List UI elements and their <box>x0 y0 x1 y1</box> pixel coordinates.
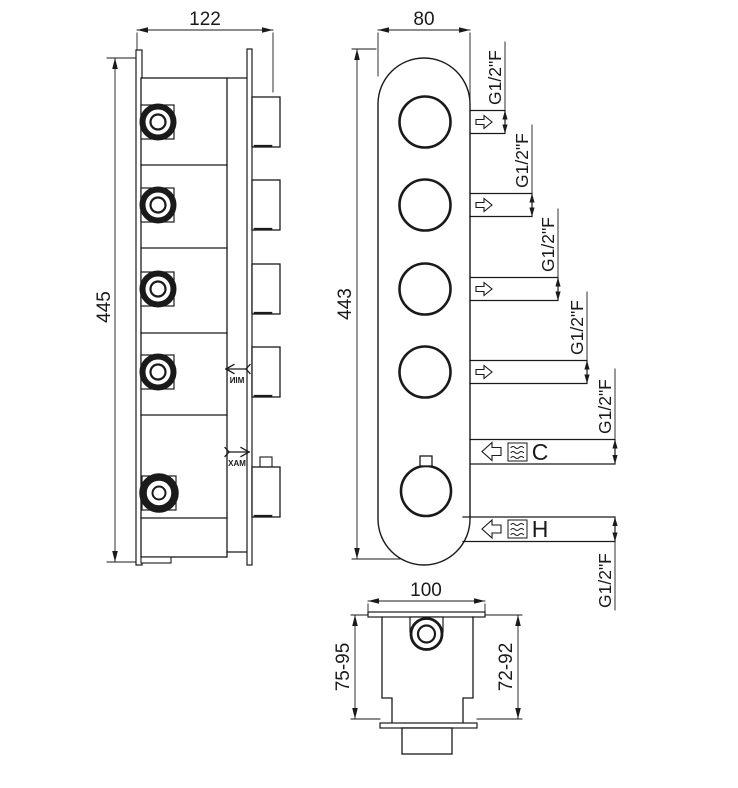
bottom-depth-right-label: 72-92 <box>496 643 517 692</box>
side-handles <box>252 97 280 517</box>
bottom-view: 100 75-95 <box>333 580 522 754</box>
max-marking: MAX <box>225 448 249 469</box>
outlet-port-label-2: G1/2"F <box>512 133 532 188</box>
side-view: 122 445 <box>94 9 280 565</box>
outlet-port-label-1: G1/2"F <box>485 50 505 105</box>
side-knob-1 <box>141 105 174 139</box>
min-marking: MIN <box>226 365 250 386</box>
bottom-junction-box <box>402 728 452 754</box>
side-handle-5-notch <box>260 457 272 467</box>
side-height-dimension: 445 <box>94 58 139 562</box>
side-handle-3 <box>252 264 280 314</box>
bottom-depth-left-dimension: 75-95 <box>333 615 380 719</box>
side-width-label: 122 <box>189 9 221 30</box>
min-label: MIN <box>229 376 244 385</box>
side-front-plate <box>247 49 252 565</box>
outlet-4: G1/2"F <box>470 292 590 384</box>
side-knob-2 <box>141 188 174 222</box>
min-arrow-icon <box>226 365 250 374</box>
hot-port-label: G1/2"F <box>595 553 615 608</box>
bottom-depth-left-label: 75-95 <box>333 643 354 692</box>
side-body-foot <box>141 557 171 563</box>
side-thermostat-knob <box>142 476 176 510</box>
max-arrow-icon <box>225 448 249 457</box>
outlet-3: G1/2"F <box>470 209 561 301</box>
side-knob-4 <box>141 355 174 389</box>
front-knob-4 <box>400 347 451 398</box>
hot-inlet-label: H <box>532 516 549 542</box>
outlet-port-label-4: G1/2"F <box>567 300 587 355</box>
bottom-mounting-plate <box>380 723 477 728</box>
side-handle-5 <box>252 467 280 517</box>
thermostat-knob-notch <box>420 456 432 466</box>
bottom-width-dimension: 100 <box>368 580 485 611</box>
front-width-label: 80 <box>413 9 434 30</box>
outlet-port-label-3: G1/2"F <box>538 217 558 272</box>
front-knob-2 <box>400 180 451 231</box>
outlet-1: G1/2"F <box>470 42 508 134</box>
bottom-depth-right-dimension: 72-92 <box>477 615 522 719</box>
technical-drawing-canvas: 122 445 <box>0 0 738 788</box>
bottom-knob <box>410 617 443 650</box>
front-knob-1 <box>400 97 451 148</box>
max-label: MAX <box>227 459 245 468</box>
outlet-2: G1/2"F <box>470 125 535 217</box>
front-height-label: 443 <box>335 288 356 320</box>
front-view: 80 443 G1/2"F G1/2"F <box>335 9 618 610</box>
side-handle-4 <box>252 347 280 397</box>
front-knob-3 <box>400 264 451 315</box>
side-handle-1 <box>252 97 280 147</box>
cold-inlet-label: C <box>532 439 549 465</box>
side-height-label: 445 <box>94 291 115 323</box>
hot-inlet: H G1/2"F <box>463 516 618 610</box>
valve-drawing: 122 445 <box>0 0 738 788</box>
cold-port-label: G1/2"F <box>595 379 615 434</box>
side-knob-3 <box>141 272 174 306</box>
side-handle-2 <box>252 180 280 230</box>
bottom-width-label: 100 <box>410 580 442 601</box>
bottom-wall-plate <box>368 612 485 617</box>
